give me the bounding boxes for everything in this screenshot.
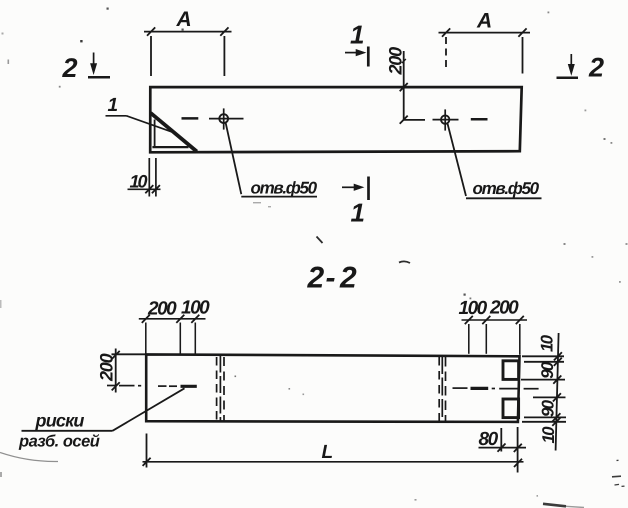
svg-text:A: A: [176, 8, 192, 31]
svg-text:отв.ф50: отв.ф50: [473, 179, 540, 198]
svg-text:80: 80: [479, 429, 499, 450]
svg-text:1: 1: [350, 20, 364, 50]
svg-text:200: 200: [386, 47, 406, 76]
svg-text:100: 100: [181, 298, 210, 319]
svg-text:200: 200: [147, 299, 177, 320]
svg-text:10: 10: [538, 334, 557, 352]
svg-text:2: 2: [588, 53, 604, 83]
svg-text:10: 10: [539, 426, 558, 444]
svg-text:отв.ф50: отв.ф50: [251, 179, 318, 198]
svg-text:10: 10: [130, 172, 148, 192]
svg-text:риски: риски: [35, 411, 85, 431]
svg-text:1: 1: [108, 95, 119, 116]
svg-text:200: 200: [97, 353, 117, 382]
svg-text:A: A: [476, 10, 492, 33]
svg-text:1: 1: [351, 198, 365, 228]
svg-text:90: 90: [539, 399, 558, 417]
svg-text:2-2: 2-2: [307, 262, 358, 295]
svg-text:90: 90: [538, 361, 557, 379]
svg-text:разб. осей: разб. осей: [18, 433, 100, 451]
svg-text:100: 100: [459, 298, 488, 319]
svg-text:2: 2: [62, 53, 78, 83]
svg-text:L: L: [322, 442, 334, 463]
svg-text:200: 200: [489, 298, 519, 319]
